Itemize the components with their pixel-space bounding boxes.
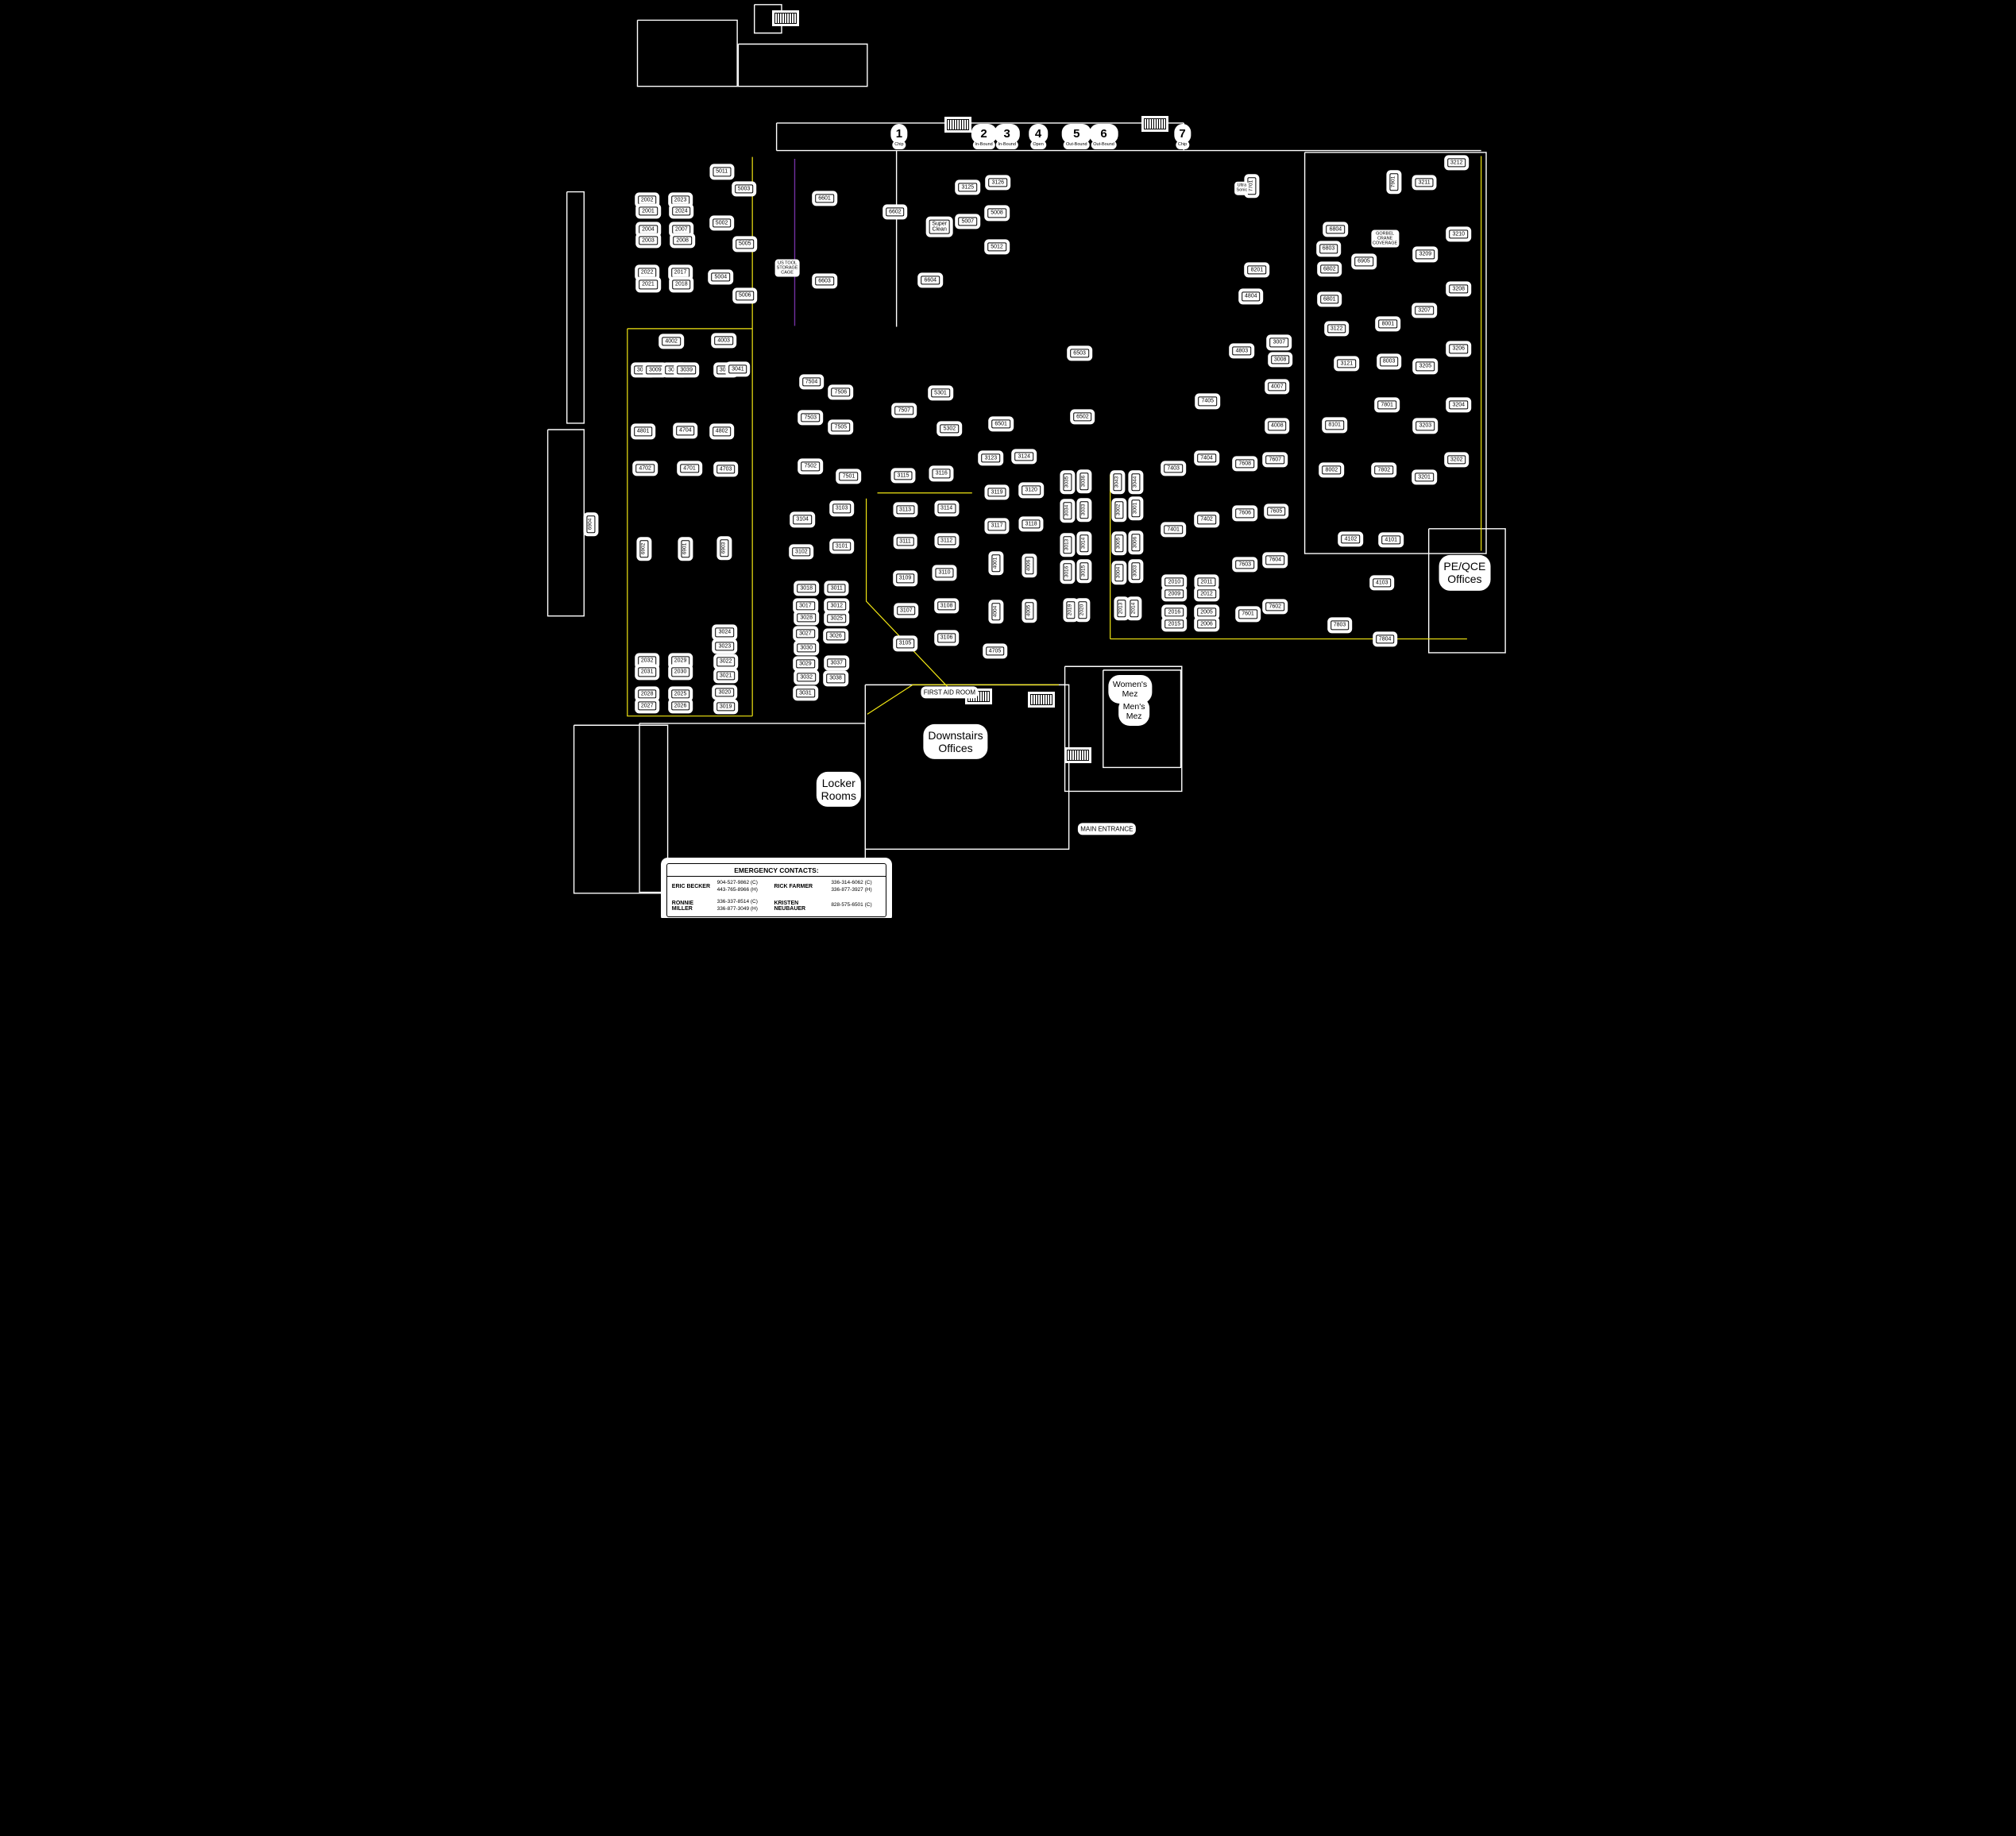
machine-label: 8101 (1325, 421, 1344, 430)
dock-door-number: 3 (998, 128, 1016, 140)
machine-label: 3111 (896, 537, 914, 546)
machine-label: 6601 (815, 194, 834, 202)
machine-label: 3113 (896, 505, 914, 514)
dock-door-number: 6 (1093, 128, 1114, 140)
floor-line (1428, 529, 1504, 653)
machine-label: 3005 (1114, 534, 1123, 552)
machine-label: 2009 (1165, 589, 1184, 598)
machine-label: 2022 (638, 268, 657, 277)
machine-label: 7502 (801, 462, 820, 471)
stairs-icon (1030, 694, 1052, 705)
machine-label: 2032 (638, 657, 657, 665)
stairs-icon (947, 119, 969, 130)
machine-label: 2018 (672, 280, 691, 289)
dock-door: 3In-Bound (998, 128, 1016, 148)
machine-label: 3025 (827, 614, 846, 623)
machine-label: 2015 (1165, 619, 1184, 628)
machine-label: 4005 (1025, 602, 1033, 619)
machine-label: 4008 (1268, 422, 1287, 430)
dock-door-type: Open (1033, 143, 1043, 148)
contact-name: ERIC BECKER (672, 884, 714, 889)
area-label: Women's Mez (1113, 680, 1147, 699)
machine-label: 3208 (1449, 284, 1468, 293)
machine-label: 4803 (1233, 346, 1252, 355)
stairs-icon (1144, 118, 1166, 129)
machine-label: 3037 (827, 658, 846, 667)
machine-label: 3043 (1114, 473, 1122, 491)
contact-phones: 336-337-8514 (C) 336-877-3049 (H) (717, 899, 771, 912)
dock-door-number: 7 (1178, 128, 1187, 140)
machine-label: 2031 (638, 668, 657, 677)
machine-label: 7801 (1377, 400, 1396, 409)
machine-label: 8201 (1248, 265, 1267, 274)
area-label: Ultra Sonic (1237, 183, 1248, 194)
machine-label: 3107 (897, 606, 916, 615)
machine-label: 4802 (713, 427, 732, 436)
machine-label: 6901 (682, 540, 690, 557)
machine-label: 6802 (1320, 264, 1339, 273)
area-label: Men's Mez (1123, 702, 1145, 721)
machine-label: 7803 (1330, 621, 1350, 630)
dock-door: 4Open (1033, 128, 1043, 148)
machine-label: 7603 (1235, 560, 1254, 569)
machine-label: 3035 (1063, 473, 1072, 491)
machine-label: 3027 (796, 629, 815, 638)
machine-label: 2016 (1165, 607, 1184, 616)
machine-label: 7402 (1197, 515, 1216, 524)
machine-label: 2001 (639, 206, 658, 215)
machine-label: 3112 (937, 536, 956, 545)
machine-label: 6801 (1320, 295, 1339, 303)
machine-label: 3009 (646, 365, 665, 374)
machine-label: 3033 (1080, 500, 1089, 518)
machine-label: 7608 (1235, 459, 1254, 468)
machine-label: 4002 (662, 337, 681, 345)
dock-door-type: Out-Bound (1093, 143, 1114, 148)
machine-label: 3115 (894, 471, 912, 480)
dock-door-type: Chip (1178, 143, 1187, 148)
floor-line (566, 192, 584, 423)
machine-label: 6904 (586, 515, 595, 533)
machine-label: 3028 (797, 613, 816, 622)
machine-label: 6603 (815, 276, 834, 285)
machine-label: 3024 (716, 628, 735, 637)
dock-door-number: 2 (975, 128, 992, 140)
floor-line (574, 725, 667, 893)
machine-label: 3038 (826, 674, 845, 683)
machine-label: 7604 (1265, 555, 1284, 564)
machine-label: 3030 (797, 643, 816, 652)
machine-label: 3104 (793, 515, 812, 524)
floor-line (637, 20, 737, 86)
machine-label: 4006 (1025, 557, 1033, 574)
machine-label: 3207 (1415, 306, 1434, 314)
contact-name: RONNIE MILLER (672, 901, 714, 912)
machine-label: 3101 (832, 542, 852, 550)
area-label: Locker Rooms (821, 777, 856, 802)
machine-label: 5002 (713, 218, 732, 227)
machine-label: 2020 (1078, 600, 1087, 618)
machine-label: 3122 (1327, 324, 1346, 333)
machine-label: 2025 (671, 689, 690, 698)
machine-label: 4704 (676, 426, 695, 434)
machine-label: 3039 (677, 365, 696, 374)
machine-label: 6804 (1327, 225, 1346, 233)
machine-label: 3001 (1132, 499, 1141, 517)
machine-label: 3203 (1416, 422, 1435, 430)
machine-label: 3125 (958, 183, 977, 191)
contact-name: KRISTEN NEUBAUER (774, 901, 828, 912)
machine-label: 3102 (792, 547, 811, 556)
machine-label: 3014 (1080, 534, 1089, 552)
machine-label: 3032 (797, 673, 816, 681)
machine-label: 7401 (1164, 525, 1183, 534)
machine-label: 3018 (797, 584, 816, 592)
machine-label: 3103 (832, 504, 852, 513)
machine-label: 2026 (671, 701, 690, 710)
machine-label: 2023 (671, 195, 690, 204)
machine-label: 3016 (1063, 563, 1072, 580)
floor-line (547, 430, 584, 616)
machine-label: 2002 (638, 195, 657, 204)
area-label: PE/QCE Offices (1443, 560, 1485, 585)
machine-label: 3019 (716, 702, 736, 711)
machine-label: 3108 (937, 601, 956, 610)
machine-label: 3209 (1416, 250, 1435, 259)
machine-label: 3044 (1132, 473, 1141, 491)
machine-label: 5007 (958, 217, 977, 226)
machine-label: 2019 (1066, 600, 1075, 618)
dock-door: 6Out-Bound (1093, 128, 1114, 148)
floor-line (738, 44, 867, 86)
machine-label: 4102 (1342, 534, 1361, 543)
machine-label: 3021 (716, 671, 736, 680)
machine-label: 8001 (1379, 319, 1398, 328)
machine-label: Super Clean (929, 219, 950, 234)
machine-label: 2005 (1197, 607, 1216, 616)
machine-label: 3023 (716, 642, 735, 650)
machine-label: 2010 (1165, 577, 1184, 586)
machine-label: 3003 (1132, 562, 1141, 580)
machine-label: 3201 (1415, 472, 1434, 481)
machine-label: 2027 (638, 701, 657, 710)
machine-label: 5003 (735, 184, 754, 193)
area-label: GORBEL CRANE COVERAGE (1373, 231, 1397, 246)
machine-label: 5301 (931, 388, 950, 397)
machine-label: 4804 (1242, 292, 1261, 301)
machine-label: 2007 (672, 225, 691, 233)
machine-label: 3031 (796, 688, 815, 697)
machine-label: 5011 (713, 168, 731, 176)
contact-name: RICK FARMER (774, 884, 828, 889)
machine-label: 3006 (1132, 534, 1141, 551)
machine-label: 7802 (1375, 465, 1394, 474)
machine-label: 3004 (1114, 564, 1123, 581)
machine-label: 3034 (1063, 502, 1072, 519)
machine-label: 7405 (1198, 397, 1217, 406)
machine-label: 2030 (671, 668, 690, 677)
machine-label: 3121 (1338, 359, 1357, 368)
machine-label: 5012 (987, 242, 1006, 251)
machine-label: 5008 (987, 209, 1006, 218)
machine-label: 2012 (1197, 589, 1216, 598)
contact-phones: 828-575-6501 (C) (831, 902, 881, 908)
stairs-icon (1067, 750, 1089, 761)
dock-door: 7Chip (1178, 128, 1187, 148)
machine-label: 3013 (1063, 535, 1072, 553)
floor-line (866, 499, 951, 691)
machine-label: 7605 (1267, 507, 1286, 515)
machine-label: 3205 (1416, 362, 1435, 371)
machine-label: 4703 (716, 465, 736, 473)
machine-label: 7804 (1376, 634, 1395, 643)
dock-door-number: 1 (894, 128, 903, 140)
machine-label: 3022 (716, 658, 736, 666)
machine-label: 3212 (1447, 158, 1466, 167)
machine-label: 3118 (1022, 519, 1041, 528)
machine-label: 7503 (801, 413, 820, 422)
machine-label: 3109 (896, 574, 915, 583)
contact-phones: 336-314-6062 (C) 336-877-3927 (H) (831, 880, 881, 893)
machine-label: 3007 (1270, 338, 1289, 347)
machine-label: 7403 (1164, 464, 1183, 472)
machine-label: 3002 (1114, 500, 1123, 518)
machine-label: 3029 (796, 659, 815, 668)
machine-label: 3012 (827, 601, 846, 610)
machine-label: 6604 (921, 276, 940, 284)
machine-label: 3210 (1449, 229, 1468, 238)
machine-label: 3204 (1449, 400, 1468, 409)
machine-label: 3015 (1080, 562, 1089, 580)
machine-label: 7602 (1265, 602, 1284, 611)
emergency-contacts-grid: ERIC BECKER904-527-9862 (C) 443-765-8966… (667, 877, 886, 916)
machine-label: 3211 (1415, 178, 1434, 187)
emergency-contacts-header: EMERGENCY CONTACTS: (667, 864, 886, 877)
machine-label: 3202 (1447, 455, 1466, 464)
machine-label: 2024 (672, 206, 691, 215)
machine-label: 3123 (982, 453, 1001, 462)
machine-label: 3036 (1080, 472, 1089, 490)
machine-label: 2004 (639, 225, 658, 233)
machine-label: 8002 (1323, 465, 1342, 474)
floor-line (865, 685, 1068, 849)
machine-label: 3116 (933, 469, 951, 478)
machine-label: 4705 (986, 646, 1005, 655)
dock-door: 1Chip (894, 128, 903, 148)
machine-label: 7404 (1197, 453, 1216, 462)
machine-label: 6503 (1070, 349, 1089, 357)
machine-label: 7701 (1248, 176, 1257, 194)
area-label: US TOOL STORAGE CAGE (777, 260, 798, 276)
machine-label: 7601 (1238, 610, 1257, 619)
dock-door: 2In-Bound (975, 128, 992, 148)
machine-label: 4801 (634, 427, 653, 436)
machine-label: 3020 (716, 688, 735, 696)
area-label: Downstairs Offices (928, 729, 983, 754)
machine-label: 7506 (832, 388, 851, 396)
machine-label: 6803 (1319, 245, 1338, 253)
machine-label: 3008 (1271, 355, 1290, 364)
machine-label: 3011 (828, 584, 846, 592)
machine-label: 7607 (1265, 455, 1284, 464)
dock-door-number: 5 (1066, 128, 1087, 140)
machine-label: 2029 (671, 657, 690, 665)
dock-door: 5Out-Bound (1066, 128, 1087, 148)
machine-label: 4007 (1268, 382, 1287, 391)
machine-label: 3041 (728, 364, 747, 373)
machine-label: 7504 (802, 377, 821, 386)
machine-label: 3120 (1022, 486, 1041, 495)
machine-label: 5005 (736, 240, 755, 249)
machine-label: 3114 (937, 504, 956, 513)
machine-label: 7501 (840, 472, 859, 480)
floor-plan: 2002200120042003202220212023202420072008… (504, 0, 1512, 918)
machine-label: 7505 (832, 422, 851, 431)
machine-label: 4003 (714, 336, 733, 345)
machine-label: 4004 (991, 603, 1000, 620)
machine-label: 3017 (796, 601, 815, 610)
machine-label: 2006 (1197, 619, 1216, 628)
machine-label: 2011 (1197, 577, 1215, 586)
machine-label: 2013 (1118, 600, 1126, 617)
machine-label: 7901 (1390, 173, 1399, 191)
machine-label: 6902 (639, 540, 648, 557)
machine-label: 3124 (1015, 452, 1034, 461)
machine-label: 2003 (639, 236, 658, 245)
contact-phones: 904-527-9862 (C) 443-765-8966 (H) (717, 880, 771, 893)
machine-label: 3119 (988, 488, 1006, 496)
emergency-contacts-panel: EMERGENCY CONTACTS: ERIC BECKER904-527-9… (666, 863, 886, 917)
machine-label: 4701 (680, 464, 699, 472)
machine-label: 6501 (991, 419, 1010, 428)
machine-label: 6905 (1354, 257, 1373, 266)
machine-label: 3117 (988, 522, 1006, 530)
dock-door-type: In-Bound (998, 143, 1016, 148)
machine-label: 3110 (936, 569, 954, 577)
machine-label: 2014 (1130, 600, 1138, 617)
machine-label: 3106 (937, 634, 956, 642)
machine-label: 4103 (1373, 578, 1392, 587)
dock-door-type: Chip (894, 143, 903, 148)
machine-label: 6602 (886, 207, 905, 216)
machine-label: 5004 (712, 272, 731, 281)
machine-label: 6903 (720, 539, 729, 557)
machine-label: 2008 (673, 236, 692, 245)
machine-label: 2028 (638, 689, 657, 698)
machine-label: 4101 (1381, 535, 1400, 544)
area-label: MAIN ENTRANCE (1080, 825, 1133, 832)
machine-label: 6502 (1073, 412, 1092, 421)
machine-label: 2017 (671, 268, 690, 277)
machine-label: 5302 (940, 424, 960, 433)
machine-label: 3026 (826, 631, 845, 640)
machine-label: 3105 (896, 639, 915, 648)
machine-label: 8003 (1380, 357, 1399, 366)
machine-label: 3206 (1449, 345, 1468, 353)
stairs-icon (774, 13, 797, 24)
machine-label: 7606 (1235, 509, 1254, 518)
machine-label: 4702 (635, 464, 655, 472)
machine-label: 3126 (989, 178, 1008, 187)
dock-door-type: Out-Bound (1066, 143, 1087, 148)
machine-label: 5006 (736, 291, 755, 300)
dock-door-number: 4 (1033, 128, 1043, 140)
machine-label: 2021 (639, 280, 658, 289)
machine-label: 7507 (894, 406, 913, 415)
machine-label: 4001 (991, 553, 1000, 571)
dock-door-type: In-Bound (975, 143, 992, 148)
area-label: FIRST AID ROOM (924, 688, 975, 696)
